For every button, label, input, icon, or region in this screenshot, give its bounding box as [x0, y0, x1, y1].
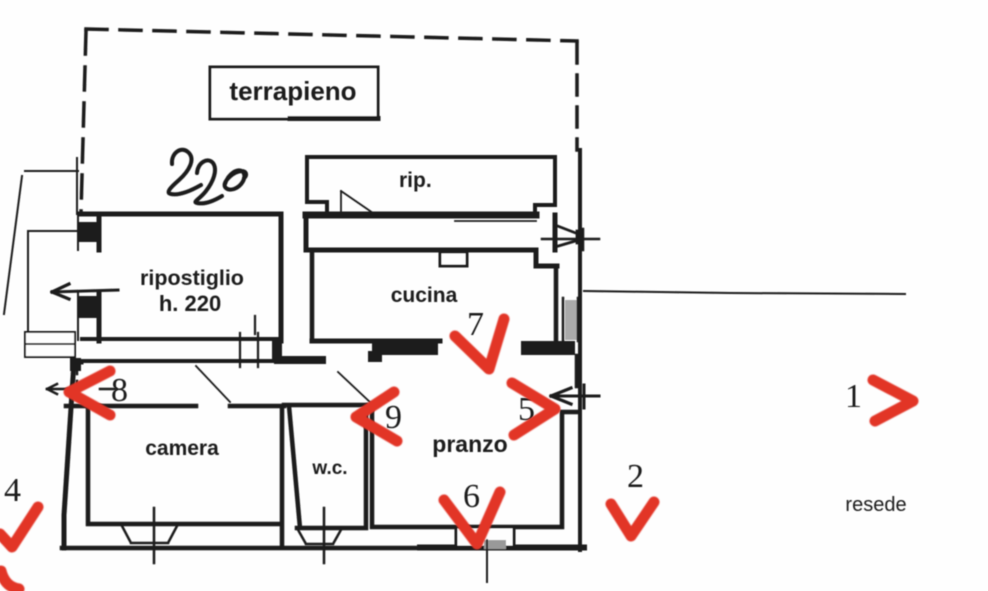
svg-text:ripostiglio: ripostiglio [140, 266, 244, 290]
svg-text:cucina: cucina [391, 284, 458, 307]
svg-text:camera: camera [145, 437, 219, 460]
svg-text:4: 4 [4, 472, 21, 509]
svg-text:resede: resede [845, 494, 906, 516]
svg-text:6: 6 [463, 478, 480, 515]
svg-text:7: 7 [467, 306, 484, 343]
svg-text:1: 1 [845, 378, 862, 415]
svg-text:pranzo: pranzo [432, 431, 507, 457]
svg-text:w.c.: w.c. [311, 458, 347, 479]
svg-text:terrapieno: terrapieno [229, 76, 356, 106]
svg-text:h. 220: h. 220 [159, 291, 221, 316]
svg-text:2: 2 [627, 458, 644, 495]
svg-text:8: 8 [111, 372, 128, 409]
svg-text:rip.: rip. [399, 169, 432, 192]
